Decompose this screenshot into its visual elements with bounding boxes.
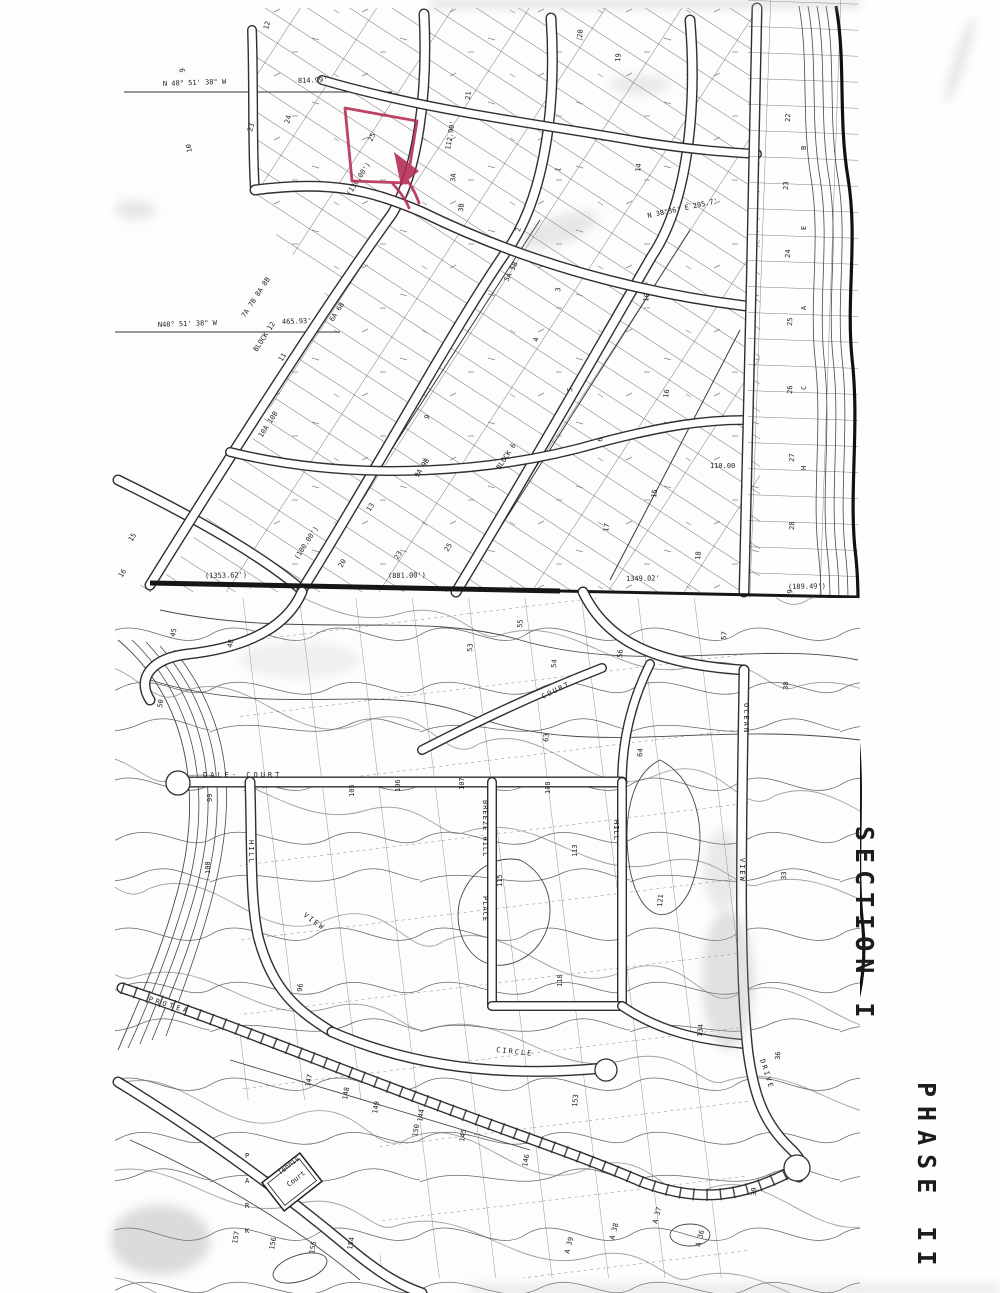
lot-number-label: 64 (636, 748, 645, 757)
lot-number-label: 100 (204, 861, 212, 874)
lot-number-label: 57 (720, 631, 729, 640)
lot-number-label: 19 (614, 53, 623, 62)
bearing-label: 110.00 (710, 462, 735, 470)
lot-number-label: 63 (542, 733, 551, 742)
bearing-label: 1349.02' (626, 574, 660, 583)
lot-number-label: 33 (780, 871, 788, 880)
street-name-label: P (245, 1152, 249, 1160)
lot-number-label: 23 (782, 181, 790, 190)
lot-number-label: 3A (449, 172, 458, 182)
circle-cul-de-sac (595, 1059, 617, 1081)
lot-number-label: 17 (602, 523, 611, 532)
lot-number-label: 115 (496, 874, 504, 887)
lot-number-label: 3B (457, 203, 466, 212)
lot-number-label: 45 (169, 628, 178, 638)
lot-number-label: 107 (458, 777, 466, 790)
lot-number-label: 53 (466, 643, 475, 652)
scanned-plat-map-page: DALE- COURTHILLVIEWCIRCLEBREEZE HILLPLAC… (0, 0, 1000, 1293)
lot-number-label: 48 (226, 639, 235, 649)
lot-number-label: 30 (782, 681, 790, 690)
bearing-label: (881.00') (388, 571, 426, 580)
lot-number-label: 56 (616, 649, 625, 658)
lot-number-label: 24 (784, 249, 792, 258)
lot-number-label: 18 (694, 551, 703, 560)
lot-number-label: 105 (348, 784, 356, 797)
lot-number-label: 26 (786, 385, 794, 394)
lot-number-label: 54 (550, 659, 559, 668)
lot-number-label: 50 (156, 699, 165, 709)
lot-number-label: 96 (296, 983, 305, 992)
lot-number-label: 22 (784, 113, 792, 122)
bearing-label: (1353.62') (205, 571, 247, 580)
lot-number-label: 21 (464, 91, 473, 100)
block-label: C (800, 386, 808, 390)
street-name-label: VIEW (738, 858, 746, 883)
street-name-label: DALE- COURT (203, 771, 282, 779)
lot-number-label: 20 (576, 29, 585, 38)
dale-court-cul-de-sac (166, 771, 190, 795)
lot-number-label: 28 (788, 521, 796, 530)
block-label: H (800, 466, 808, 470)
lot-number-label: 15 (650, 489, 659, 498)
lot-number-label: 153 (571, 1094, 580, 1107)
drive-cul-de-sac (784, 1155, 810, 1181)
lot-number-label: 10 (642, 293, 651, 302)
upper-plat-section (115, 8, 760, 592)
lot-number-label: 134 (696, 1024, 705, 1037)
plat-map-drawing: DALE- COURTHILLVIEWCIRCLEBREEZE HILLPLAC… (0, 0, 1000, 1293)
lot-number-label: 36 (774, 1051, 782, 1060)
lot-number-label: 99 (206, 794, 214, 802)
lot-number-label: 55 (516, 619, 525, 628)
lot-number-label: 14 (634, 163, 643, 172)
lot-number-label: 113 (571, 844, 579, 857)
street-name-label: PLACE (481, 896, 489, 922)
lot-number-label: 25 (786, 317, 794, 326)
large-parcel-area (115, 8, 252, 192)
street-name-label: BREEZE HILL (481, 800, 489, 857)
lot-number-label: 10 (185, 143, 194, 153)
lot-number-label: 16 (662, 389, 671, 398)
phase-label: PHASE II (912, 1082, 941, 1274)
street-name-label: HILL (612, 820, 620, 841)
lot-number-label: 108 (544, 781, 552, 794)
lot-number-label: 29 (786, 589, 794, 598)
lot-number-label: 39 (750, 1187, 758, 1196)
lot-number-label: 118 (556, 974, 564, 987)
bearing-label: 465.93' (282, 317, 312, 326)
section-label: SECTION I (850, 826, 879, 1024)
street-name-label: OCEAN (742, 703, 750, 734)
block-label: E (800, 226, 808, 230)
lot-number-label: 106 (394, 779, 402, 792)
bearing-label: 814.99' (298, 76, 328, 85)
block-label: B (800, 146, 808, 150)
lot-number-label: 121 (656, 894, 665, 907)
lot-number-label: 27 (788, 453, 796, 462)
street-name-label: HILL (247, 840, 255, 865)
